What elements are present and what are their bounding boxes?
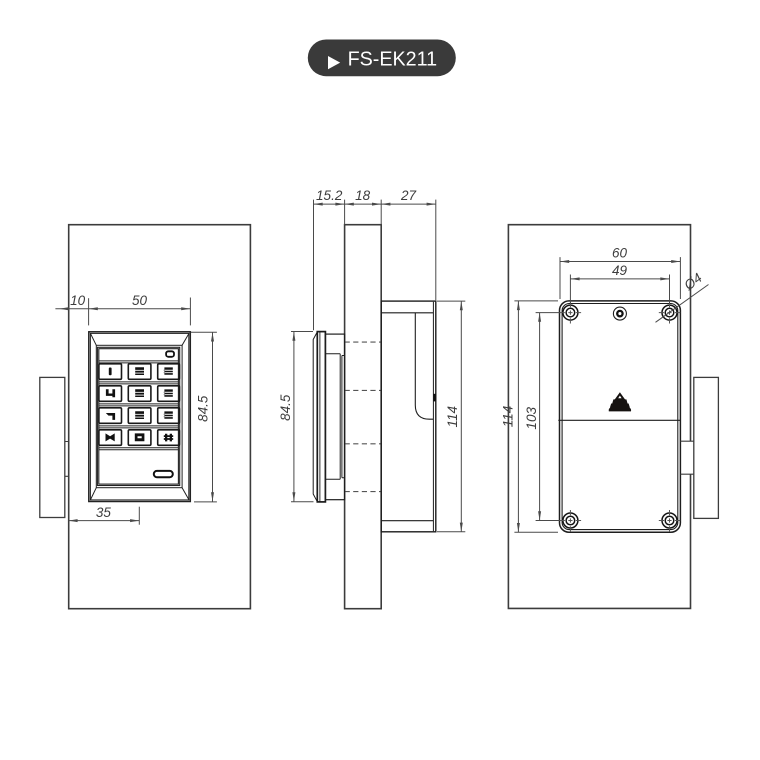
svg-text:84.5: 84.5 xyxy=(278,394,293,421)
svg-text:18: 18 xyxy=(355,188,371,203)
svg-text:15.2: 15.2 xyxy=(316,188,343,203)
svg-text:10: 10 xyxy=(70,293,86,308)
svg-text:35: 35 xyxy=(96,505,112,520)
svg-text:114: 114 xyxy=(445,406,460,428)
svg-text:49: 49 xyxy=(612,263,628,278)
svg-text:FS-EK211: FS-EK211 xyxy=(348,49,438,71)
svg-text:103: 103 xyxy=(524,407,539,430)
svg-text:50: 50 xyxy=(132,293,148,308)
svg-text:84.5: 84.5 xyxy=(195,395,210,422)
svg-text:114: 114 xyxy=(501,406,516,428)
svg-text:27: 27 xyxy=(400,188,417,203)
svg-text:60: 60 xyxy=(612,245,628,260)
